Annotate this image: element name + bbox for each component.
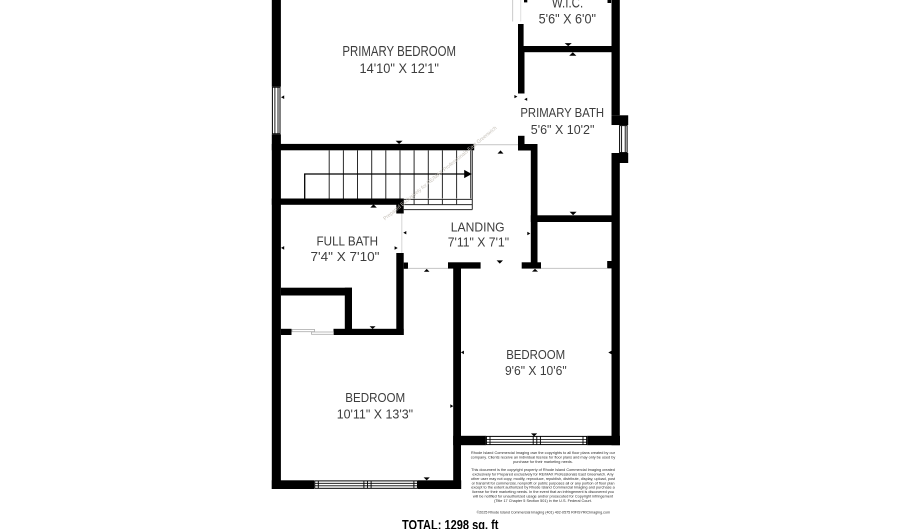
svg-text:9'6" X 10'6": 9'6" X 10'6" [505,363,567,378]
svg-text:license for their marketing ne: license for their marketing needs. In th… [472,490,614,494]
svg-text:except to the extent authorize: except to the extent authorized by Rhode… [471,486,615,490]
svg-text:other user may not copy, modif: other user may not copy, modify, reprodu… [471,477,616,481]
svg-text:10'11" X 13'3": 10'11" X 13'3" [337,407,414,422]
svg-text:Rhode Island Commercial Imagin: Rhode Island Commercial Imaging own the … [471,451,616,455]
svg-text:This document is the copyright: This document is the copyright property … [471,468,615,472]
svg-text:purchase for their marketing n: purchase for their marketing needs. [513,460,573,464]
svg-text:company. Clients receive an in: company. Clients receive an individual l… [471,455,616,459]
svg-text:5'6" X 6'0": 5'6" X 6'0" [539,10,596,26]
svg-text:7'4" X 7'10": 7'4" X 7'10" [311,249,380,264]
svg-text:14'10" X 12'1": 14'10" X 12'1" [360,60,439,76]
svg-text:will be notified for unauthori: will be notified for unauthorized usage … [473,495,614,499]
svg-text:BEDROOM: BEDROOM [506,347,565,362]
svg-text:TOTAL: 1298 sq. ft: TOTAL: 1298 sq. ft [402,518,499,529]
svg-text:FULL BATH: FULL BATH [317,233,379,248]
svg-text:7'11" X 7'1": 7'11" X 7'1" [448,235,509,249]
svg-text:BEDROOM: BEDROOM [345,390,405,405]
svg-text:or transmit for commercial, no: or transmit for commercial, nonprofit or… [472,481,615,485]
svg-text:LANDING: LANDING [451,221,505,235]
svg-text:5'6" X 10'2": 5'6" X 10'2" [531,122,595,137]
svg-text:©2025 Rhode Island Commercial: ©2025 Rhode Island Commercial Imaging (4… [477,511,610,515]
svg-text:PRIMARY BEDROOM: PRIMARY BEDROOM [342,43,456,60]
svg-text:exclusively for Prepared exclu: exclusively for Prepared exclusively for… [472,472,613,476]
svg-text:(Title 17 Chapter 5 Section 50: (Title 17 Chapter 5 Section 501) in the … [494,499,592,503]
svg-text:PRIMARY BATH: PRIMARY BATH [520,106,604,120]
